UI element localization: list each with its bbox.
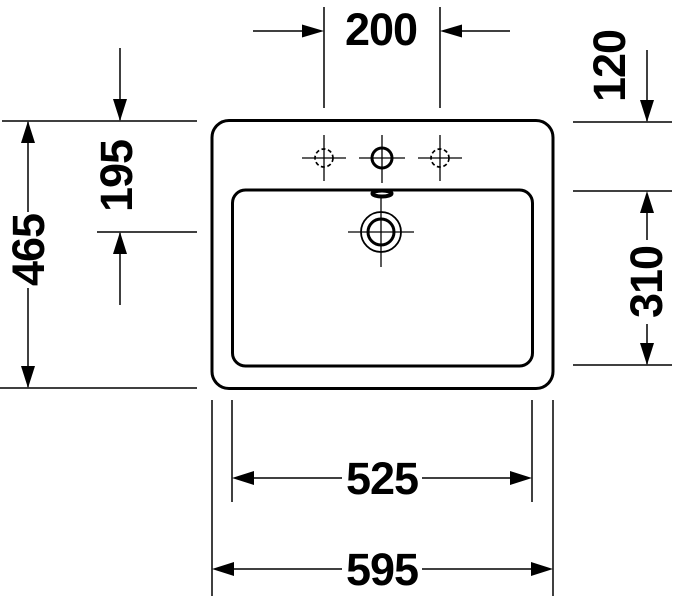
arrowhead-left	[440, 25, 462, 38]
arrowhead-up	[640, 191, 654, 213]
overflow-slot-ellipse	[373, 191, 392, 197]
arrowhead-down	[113, 99, 127, 121]
arrowhead-right	[531, 562, 553, 576]
arrowhead-left	[232, 471, 254, 485]
arrowhead-right	[510, 471, 532, 485]
dim-label-overall-depth: 465	[3, 214, 54, 286]
tap-hole-center	[359, 135, 405, 183]
arrowhead-down	[21, 366, 35, 388]
tap-hole-right	[418, 135, 462, 181]
arrowhead-down	[640, 100, 654, 122]
tap-hole-left	[302, 135, 346, 181]
basin-inner-edge	[233, 190, 533, 366]
technical-drawing-canvas: 200 120 195 465 310	[0, 0, 673, 600]
washbasin-dimension-drawing: 200 120 195 465 310	[0, 0, 673, 600]
arrowhead-down	[640, 343, 654, 365]
dim-label-rim-to-drain-center: 195	[91, 140, 142, 212]
dim-label-rim-to-inner-edge: 120	[584, 30, 635, 102]
drain	[348, 197, 414, 267]
arrowhead-up	[113, 232, 127, 254]
dim-label-inner-basin-width: 525	[346, 453, 418, 504]
dim-label-inner-basin-depth: 310	[621, 246, 672, 318]
dim-inner-basin-depth: 310	[573, 191, 672, 365]
dim-inner-basin-width: 525	[232, 400, 532, 504]
dim-tap-hole-spacing: 200	[253, 4, 510, 108]
dim-label-overall-width: 595	[346, 544, 418, 595]
dim-rim-to-inner-edge: 120	[573, 30, 672, 191]
dim-rim-to-drain-center: 195	[91, 48, 197, 305]
dim-label-tap-hole-spacing: 200	[345, 4, 417, 55]
arrowhead-left	[212, 562, 234, 576]
arrowhead-up	[21, 121, 35, 143]
arrowhead-right	[302, 25, 324, 38]
overflow-slot	[373, 191, 392, 197]
